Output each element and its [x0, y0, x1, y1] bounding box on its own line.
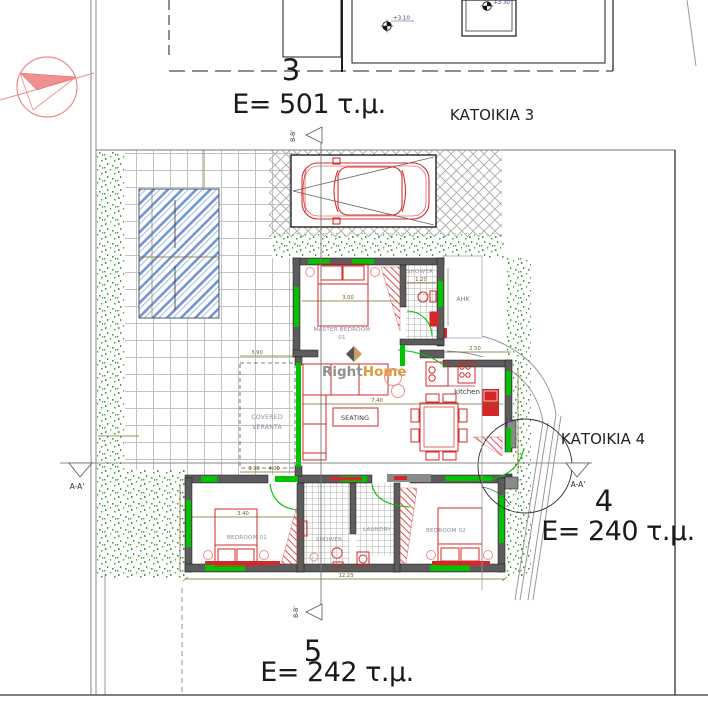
carport — [291, 155, 436, 227]
plot4-number: 4 — [595, 484, 613, 518]
svg-text:3.90: 3.90 — [248, 466, 260, 472]
level-marker-icon: +3.10 — [381, 16, 415, 33]
plot3-house: ΚΑΤΟΙΚΙΑ 3 — [450, 106, 534, 124]
svg-text:7.40: 7.40 — [371, 398, 383, 404]
svg-text:3.90: 3.90 — [251, 350, 263, 356]
watermark-part1: Right — [322, 364, 363, 380]
ahk-label: AHK — [456, 295, 470, 303]
plot3-area: E= 501 τ.μ. — [232, 89, 385, 120]
section-bb-bottom-label: B-B' — [293, 606, 300, 618]
watermark-part2: Home — [363, 364, 407, 380]
svg-text:3.00: 3.00 — [342, 295, 354, 301]
veranda-label-2: VERANTA — [252, 424, 283, 431]
shower-bottom-label: SHOWER — [316, 537, 342, 543]
master-bedroom-label: MASTER BEDROOM — [314, 327, 371, 333]
site-plan-drawing: +3.10 +3.30 — [0, 0, 708, 727]
bedroom2-label: BEDROOM 02 — [426, 528, 466, 534]
laundry-label: LAUNDRY — [363, 527, 391, 533]
kitchen-label: kitchen — [454, 388, 480, 396]
svg-text:2.50: 2.50 — [469, 346, 481, 352]
plot4-house: ΚΑΤΟΙΚΙΑ 4 — [561, 430, 645, 448]
ahk-cabinet: AHK — [443, 256, 482, 338]
seating-label: SEATING — [341, 414, 369, 422]
svg-text:3.40: 3.40 — [237, 511, 249, 517]
svg-text:1.20: 1.20 — [415, 277, 427, 283]
plot3-number: 3 — [282, 53, 300, 87]
neighbour-building-outlines — [169, 0, 613, 72]
level-value-garage: +3.10 — [393, 16, 410, 22]
svg-text:RightHome: RightHome — [322, 364, 407, 380]
plot4-area: E= 240 τ.μ. — [541, 516, 694, 547]
section-aa-left-label: A-A' — [70, 482, 85, 491]
level-marker-icon-2: +3.30 — [481, 0, 511, 10]
veranda-label-1: COVERED — [251, 414, 283, 421]
plot5-area: E= 242 τ.μ. — [260, 657, 413, 688]
bedroom1-label: BEDROOM 01 — [227, 535, 267, 541]
section-bb-top-label: B-B' — [290, 130, 297, 142]
master-bedroom-number: 01 — [338, 335, 346, 341]
level-value-upper: +3.30 — [493, 0, 510, 6]
svg-text:12.23: 12.23 — [339, 573, 354, 579]
shower-top-label: SHOWER — [407, 269, 433, 275]
north-arrow-icon — [0, 57, 94, 117]
swimming-pool — [139, 189, 219, 318]
svg-text:4.00: 4.00 — [268, 466, 280, 472]
section-aa-right-label: A-A' — [571, 480, 586, 489]
